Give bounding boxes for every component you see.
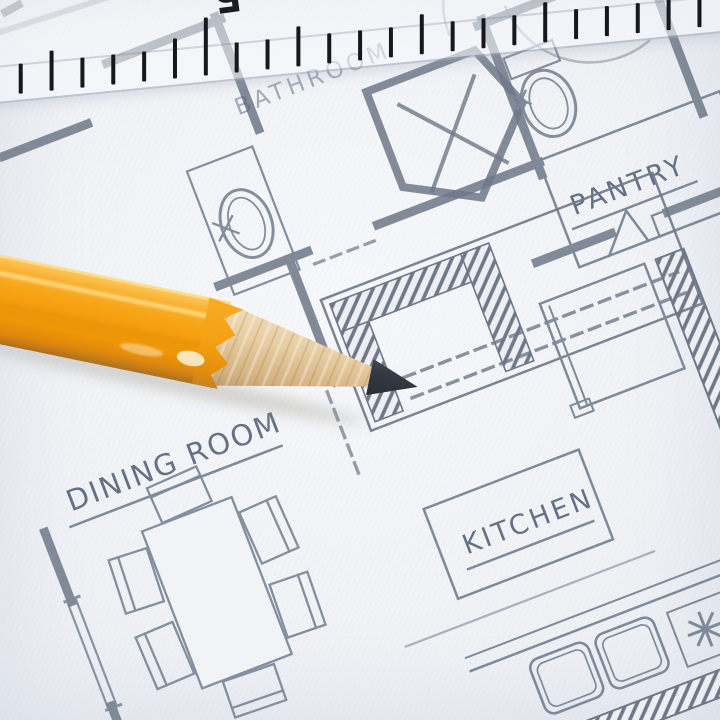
- ruler-tick: [358, 30, 361, 60]
- ruler-tick: [512, 15, 516, 45]
- ruler-number: 5: [203, 0, 252, 20]
- ruler-tick: [389, 27, 393, 57]
- ruler-tick: [235, 42, 239, 72]
- dining-room-label: DINING ROOM: [61, 405, 285, 518]
- ruler-tick: [327, 33, 330, 63]
- ruler-tick: [266, 39, 269, 69]
- ruler-tick: [451, 21, 455, 51]
- ruler-tick: [636, 3, 640, 33]
- ruler-tick: [173, 39, 177, 79]
- door-icon: [596, 207, 648, 256]
- ruler-tick: [296, 26, 299, 66]
- kitchen-label: KITCHEN: [458, 483, 598, 561]
- ruler-tick: [19, 64, 23, 94]
- ruler-tick: [111, 55, 115, 85]
- ruler-tick: [667, 0, 671, 30]
- ruler-tick: [80, 58, 84, 88]
- ruler-tick: [420, 14, 424, 54]
- ruler-tick: [204, 17, 208, 75]
- ruler-tick: [142, 52, 146, 82]
- blueprint-photo: PANTRY BATHROOM: [0, 0, 720, 720]
- ruler-tick: [543, 2, 547, 42]
- burner-icon: [667, 590, 720, 667]
- ruler-tick: [482, 18, 486, 48]
- ruler-tick: [574, 9, 578, 39]
- ruler-tick: [605, 6, 609, 36]
- ruler-tick: [50, 51, 54, 91]
- window-icon: [65, 596, 121, 710]
- ruler-tick: [697, 0, 701, 27]
- island-counter: [532, 264, 687, 418]
